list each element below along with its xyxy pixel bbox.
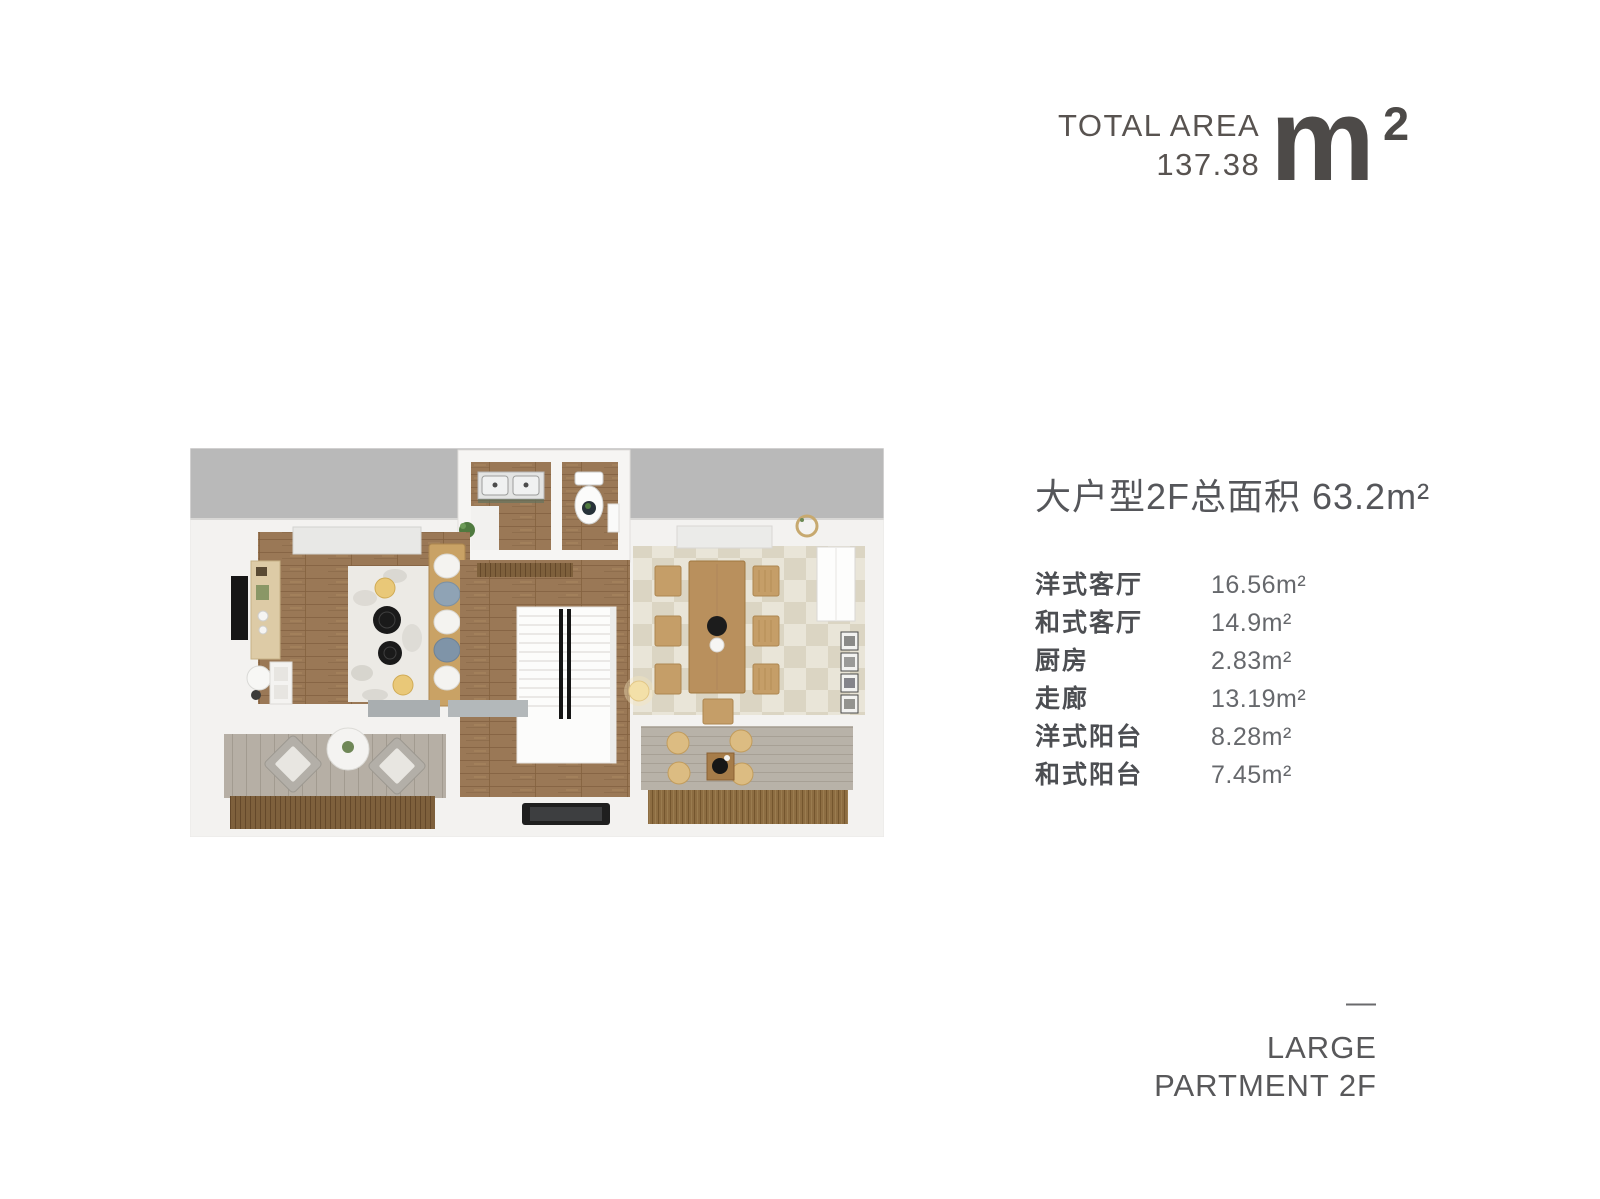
rug	[348, 566, 430, 702]
room-area: 2.83m²	[1211, 642, 1430, 680]
room-area: 16.56m²	[1211, 566, 1430, 604]
stair-railing	[567, 609, 571, 719]
total-area-label: TOTAL AREA	[1058, 106, 1260, 145]
western-living-room	[231, 527, 470, 706]
plant-icon	[342, 741, 354, 753]
side-table-and-chair	[247, 662, 292, 704]
japanese-living-room	[624, 516, 865, 724]
skylight	[677, 526, 772, 548]
toilet	[575, 472, 603, 524]
room-area: 7.45m²	[1211, 756, 1430, 794]
room-label: 走廊	[1035, 680, 1211, 718]
kitchen-counter	[471, 506, 499, 550]
total-area-logo: TOTAL AREA 137.38 m 2	[1058, 96, 1422, 205]
room-area: 8.28m²	[1211, 718, 1430, 756]
area-details-panel: 大户型2F总面积 63.2m² 洋式客厅 16.56m² 和式客厅 14.9m²…	[1035, 468, 1430, 794]
m2-superscript: 2	[1383, 97, 1409, 150]
room-label: 和式阳台	[1035, 756, 1211, 794]
room-area: 14.9m²	[1211, 604, 1430, 642]
page: { "total_area": { "label": "TOTAL AREA",…	[0, 0, 1600, 1199]
floor-lamp	[624, 676, 654, 706]
toilet-cabinet	[608, 504, 619, 532]
brand-footer: — LARGE PARTMENT 2F	[1154, 984, 1377, 1105]
sofa	[429, 544, 465, 706]
total-area-value: 137.38	[1058, 145, 1260, 184]
kitchen-sink	[478, 472, 544, 503]
room-label: 洋式客厅	[1035, 566, 1211, 604]
room-area: 13.19m²	[1211, 680, 1430, 718]
kitchen-and-toilet-block	[458, 450, 630, 562]
room-label: 厨房	[1035, 642, 1211, 680]
details-heading: 大户型2F总面积 63.2m²	[1035, 468, 1430, 520]
room-label: 和式客厅	[1035, 604, 1211, 642]
stair-railing	[559, 609, 563, 719]
coffee-table	[373, 606, 401, 634]
sideboard	[251, 561, 280, 659]
doormat	[522, 803, 610, 825]
stool	[730, 730, 752, 752]
total-area-text: TOTAL AREA 137.38	[1058, 106, 1260, 184]
pouf	[393, 675, 413, 695]
tatami-mat	[648, 790, 848, 824]
tv	[231, 576, 248, 640]
stairs	[517, 607, 616, 763]
dining-table	[689, 561, 745, 693]
coffee-table	[378, 641, 402, 665]
deck-slats	[230, 796, 435, 829]
m2-letter: m	[1270, 96, 1375, 200]
stool	[668, 762, 690, 784]
square-meter-icon: m 2	[1270, 96, 1422, 205]
entrance-mat	[477, 563, 573, 577]
skylight	[293, 527, 421, 554]
floorplan-image	[190, 448, 884, 837]
glass-panel	[368, 700, 440, 717]
footer-line1: LARGE	[1154, 1029, 1377, 1067]
hallway	[460, 560, 630, 825]
stool	[667, 732, 689, 754]
room-label: 洋式阳台	[1035, 718, 1211, 756]
room-area-table: 洋式客厅 16.56m² 和式客厅 14.9m² 厨房 2.83m² 走廊 13…	[1035, 566, 1430, 794]
footer-dash: —	[1154, 984, 1377, 1022]
footer-line2: PARTMENT 2F	[1154, 1067, 1377, 1105]
japanese-balcony	[641, 726, 853, 824]
floorplan-svg	[190, 448, 884, 837]
pouf	[375, 578, 395, 598]
glass-panel	[448, 700, 528, 717]
teapot	[707, 616, 727, 636]
